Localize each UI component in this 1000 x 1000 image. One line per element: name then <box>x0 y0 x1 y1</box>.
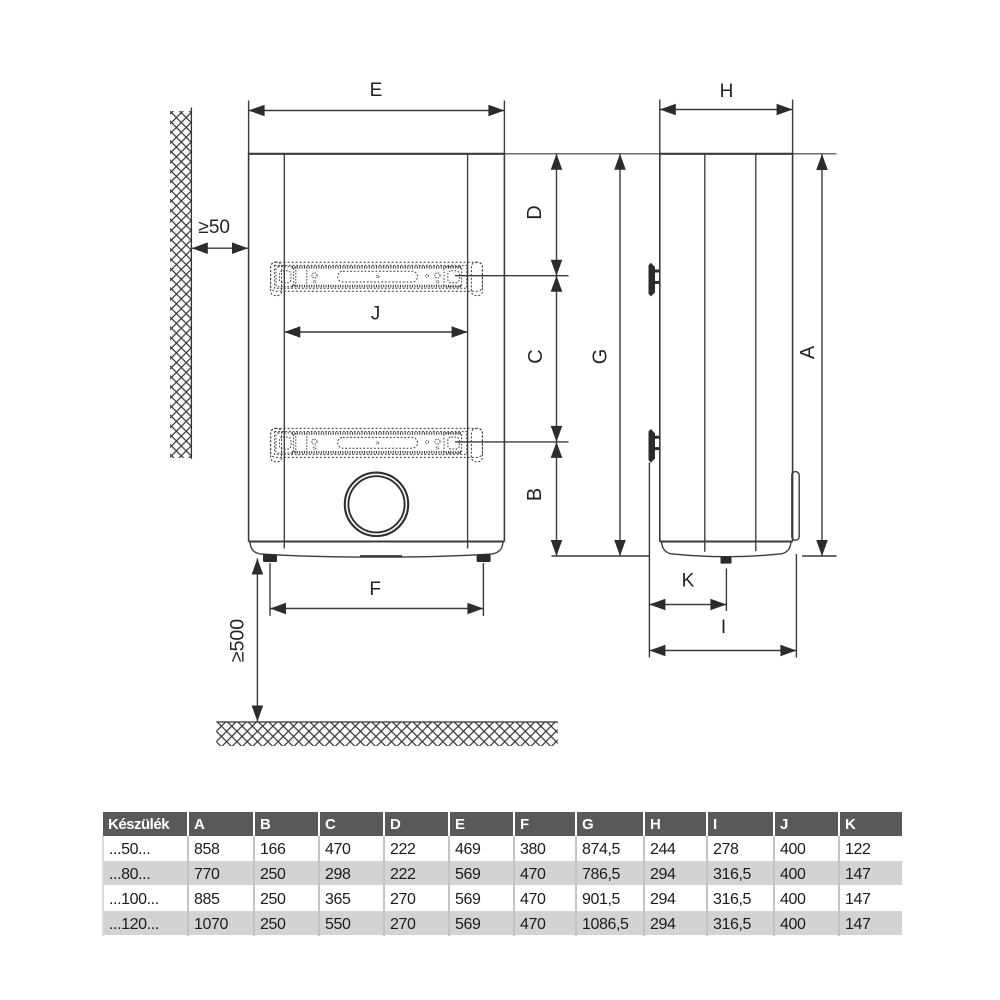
svg-text:F: F <box>369 579 381 600</box>
svg-text:C: C <box>525 349 547 363</box>
svg-text:J: J <box>371 304 381 325</box>
svg-text:E: E <box>370 80 383 101</box>
svg-text:B: B <box>524 488 546 501</box>
svg-text:D: D <box>524 205 546 219</box>
svg-text:H: H <box>720 81 734 102</box>
svg-text:≥50: ≥50 <box>198 217 230 238</box>
svg-text:G: G <box>590 349 612 365</box>
svg-text:I: I <box>721 617 726 638</box>
svg-text:A: A <box>797 345 819 359</box>
svg-text:≥500: ≥500 <box>227 619 249 662</box>
svg-text:K: K <box>682 571 695 592</box>
